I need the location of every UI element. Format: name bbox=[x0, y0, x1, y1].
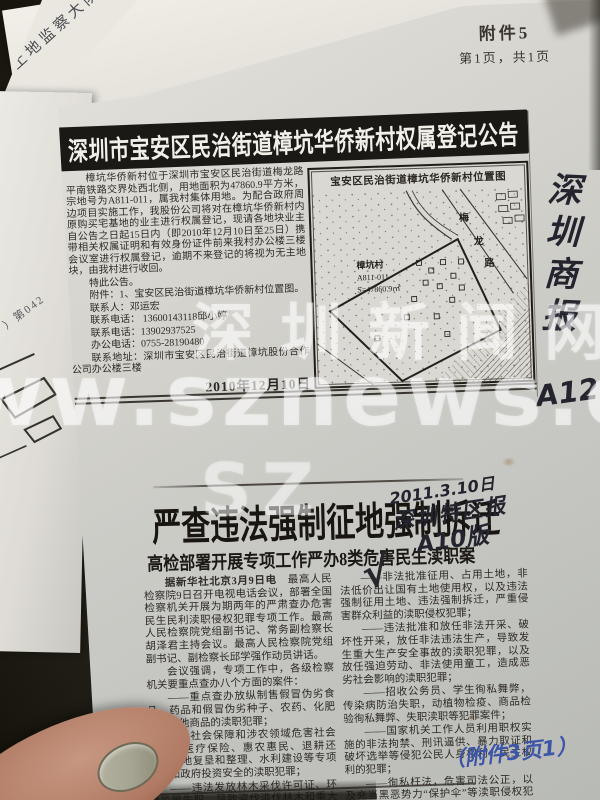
page-indicator: 第1页，共1页 bbox=[459, 46, 551, 67]
map-parcel-number: A811-011 bbox=[357, 272, 389, 282]
article-paragraph: ——社会保障和涉农领域危害社会保险、医疗保险、惠农惠民、退耕还林、土地复垦和整理… bbox=[148, 728, 337, 783]
location-map: 宝安区民治街道樟坑华侨新村位置图 bbox=[307, 161, 535, 389]
announcement-headline: 深圳市宝安区民治街道樟坑华侨新村权属登记公告 bbox=[67, 113, 519, 168]
map-road-char-1: 梅 bbox=[459, 211, 469, 224]
announcement-body: 樟坑华侨新村位于深圳市宝安区民治街道梅龙路平南铁路交界处西北侧，用地面积为478… bbox=[65, 166, 310, 376]
page-content: 附件5 第1页，共1页 深圳市宝安区民治街道樟坑华侨新村权属登记公告 樟坑华侨新… bbox=[20, 0, 600, 800]
handwritten-source-newspaper: 深圳商报 bbox=[531, 171, 587, 341]
location-map-drawing: 樟坑村 A811-011 S=47860.9㎡ 梅 龙 路 bbox=[310, 185, 532, 388]
map-road-char-3: 路 bbox=[484, 256, 495, 269]
map-road-char-2: 龙 bbox=[473, 234, 484, 247]
article-paragraph: ——招收公务员、学生徇私舞弊，传染病防治失职，动植物检疫、商品检验徇私舞弊、失职… bbox=[343, 684, 532, 727]
article-paragraph: ——违法批准和放任非法开采、破坏性开采，放任非法违法生产，导致发生重大生产安全事… bbox=[341, 620, 531, 688]
photo-edge-shadow bbox=[588, 0, 600, 170]
map-parcel-area: S=47860.9㎡ bbox=[357, 284, 400, 294]
attachment-label: 附件5 bbox=[458, 18, 551, 45]
article-left-column: 据新华社北京3月9日电 最高人民检察院9日召开电视电话会议，部署全国检察机关开展… bbox=[144, 574, 338, 800]
handwritten-source-page: A12 bbox=[534, 371, 600, 413]
underlying-doc-sketch bbox=[0, 341, 83, 483]
article-dateline: 据新华社北京3月9日电 bbox=[165, 575, 277, 589]
underlying-doc-number: ）第042 bbox=[0, 291, 48, 333]
announcement-paragraph: 樟坑华侨新村位于深圳市宝安区民治街道梅龙路平南铁路交界处西北侧，用地面积为478… bbox=[65, 166, 306, 277]
attachment-header: 附件5 第1页，共1页 bbox=[458, 18, 551, 67]
announcement-clipping: 深圳市宝安区民治街道樟坑华侨新村权属登记公告 樟坑华侨新村位于深圳市宝安区民治街… bbox=[58, 111, 538, 412]
map-parcel-name: 樟坑村 bbox=[355, 259, 383, 271]
main-page: 附件5 第1页，共1页 深圳市宝安区民治街道樟坑华侨新村权属登记公告 樟坑华侨新… bbox=[30, 0, 600, 800]
article-lead-paragraph: 据新华社北京3月9日电 最高人民检察院9日召开电视电话会议，部署全国检察机关开展… bbox=[144, 574, 334, 667]
paper-stain bbox=[502, 457, 516, 467]
photographed-document: 土地监察大队 ）第042 附件5 第1页，共1页 深圳市宝安区民治街道樟坑华侨新… bbox=[0, 0, 600, 800]
article-paragraph: ——重点查办放纵制售假冒伪劣食品、药品和假冒伪劣种子、农药、化肥以及其他商品的渎… bbox=[147, 689, 336, 732]
